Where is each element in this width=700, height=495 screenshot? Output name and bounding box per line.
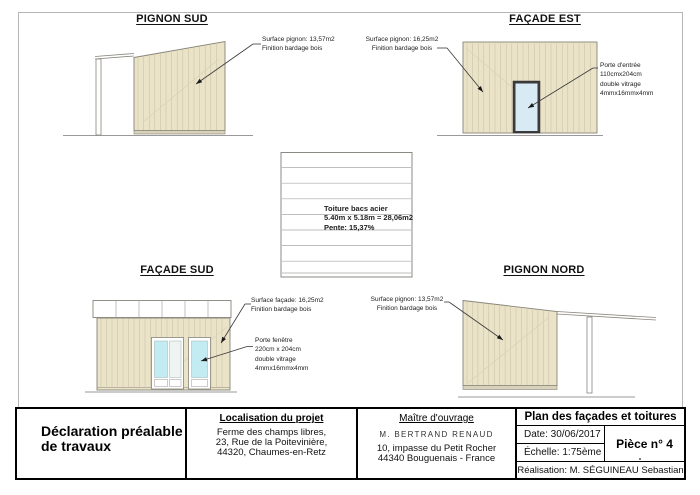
pignon-nord-surface-note: Surface pignon: 13,57m2 Finition bardage…: [368, 295, 446, 314]
plan-date-scale: Date: 30/06/2017 Échelle: 1:75ème: [517, 426, 605, 461]
view-title-pignon-sud: PIGNON SUD: [102, 13, 242, 25]
gable-wall: [134, 42, 225, 131]
title-block-maitre-ouvrage: Maître d'ouvrage M. BERTRAND RENAUD 10, …: [358, 409, 517, 478]
annotation-line: Pente: 15,37%: [324, 223, 413, 232]
annotation-line: Toiture bacs acier: [324, 204, 413, 213]
facade-est-door-note: Porte d'entrée 110cmx204cm double vitrag…: [600, 61, 653, 99]
annotation-line: 5.40m x 5.18m = 28,06m2: [324, 213, 413, 222]
facade-est-drawing: [463, 42, 597, 133]
annotation-line: Surface pignon: 13,57m2: [368, 295, 446, 304]
view-title-facade-sud: FAÇADE SUD: [107, 264, 247, 276]
view-title-facade-est: FAÇADE EST: [475, 13, 615, 25]
gable-wall: [463, 301, 557, 386]
plan-meta-row: Date: 30/06/2017 Échelle: 1:75ème Pièce …: [517, 426, 684, 462]
annotation-line: Finition bardage bois: [251, 305, 324, 314]
porch-post: [587, 317, 592, 393]
address-line: 44340 Bouguenais - France: [358, 454, 515, 464]
pignon-sud-drawing: [95, 42, 225, 136]
facade-sud-surface-note: Surface façade: 16,25m2 Finition bardage…: [251, 296, 324, 315]
roof-plan-note: Toiture bacs acier 5.40m x 5.18m = 28,06…: [324, 204, 413, 232]
pignon-sud-surface-note: Surface pignon: 13,57m2 Finition bardage…: [262, 35, 335, 54]
title-block: Déclaration préalable de travaux Localis…: [15, 407, 686, 480]
spandrel-panel: [170, 380, 182, 387]
plan-date: Date: 30/06/2017: [517, 426, 604, 444]
annotation-line: Finition bardage bois: [368, 304, 446, 313]
owner-address: 10, impasse du Petit Rocher 44340 Bougue…: [358, 444, 515, 464]
title-block-localisation: Localisation du projet Ferme des champs …: [187, 409, 358, 478]
annotation-line: Surface pignon: 13,57m2: [262, 35, 335, 44]
annotation-line: 220cm x 204cm: [255, 345, 308, 354]
annotation-line: double vitrage: [600, 80, 653, 89]
glass-pane: [170, 341, 182, 378]
project-address: Ferme des champs libres, 23, Rue de la P…: [187, 428, 356, 458]
pignon-nord-drawing: [463, 301, 656, 394]
localisation-header: Localisation du projet: [187, 413, 356, 424]
plan-realisation: Réalisation: M. SÉGUINEAU Sebastian: [517, 462, 684, 478]
address-line: 44320, Chaumes-en-Retz: [187, 448, 356, 458]
annotation-line: double vitrage: [255, 355, 308, 364]
entry-door-glass: [516, 84, 538, 132]
spandrel-panel: [155, 380, 168, 387]
annotation-line: 4mmx16mmx4mm: [600, 89, 653, 98]
title-block-plan-info: Plan des façades et toitures Date: 30/06…: [517, 409, 684, 478]
title-block-declaration: Déclaration préalable de travaux: [17, 409, 187, 478]
glass-pane: [155, 341, 168, 378]
declaration-line: de travaux: [41, 439, 185, 454]
annotation-line: 4mmx16mmx4mm: [255, 364, 308, 373]
declaration-line: Déclaration préalable: [41, 424, 185, 439]
annotation-line: Porte d'entrée: [600, 61, 653, 70]
piece-number: Pièce n° 4: [605, 426, 684, 461]
plinth: [134, 131, 225, 135]
annotation-line: Surface pignon: 16,25m2: [363, 35, 441, 44]
annotation-line: Porte fenêtre: [255, 336, 308, 345]
annotation-line: Surface façade: 16,25m2: [251, 296, 324, 305]
plan-title: Plan des façades et toitures: [517, 409, 684, 426]
drawing-sheet: PIGNON SUD FAÇADE EST FAÇADE SUD PIGNON …: [0, 0, 700, 495]
annotation-line: Finition bardage bois: [262, 44, 335, 53]
plinth: [463, 386, 557, 390]
facade-sud-drawing: [93, 301, 231, 391]
annotation-line: Finition bardage bois: [363, 44, 441, 53]
view-title-pignon-nord: PIGNON NORD: [474, 264, 614, 276]
facade-est-surface-note: Surface pignon: 16,25m2 Finition bardage…: [363, 35, 441, 54]
porch-post: [96, 59, 101, 135]
stray-mark: [639, 458, 641, 460]
spandrel-panel: [192, 380, 208, 387]
owner-name: M. BERTRAND RENAUD: [358, 430, 515, 439]
maitre-ouvrage-header: Maître d'ouvrage: [358, 413, 515, 424]
plan-scale: Échelle: 1:75ème: [517, 444, 604, 461]
annotation-line: 110cmx204cm: [600, 70, 653, 79]
facade-sud-window-note: Porte fenêtre 220cm x 204cm double vitra…: [255, 336, 308, 374]
